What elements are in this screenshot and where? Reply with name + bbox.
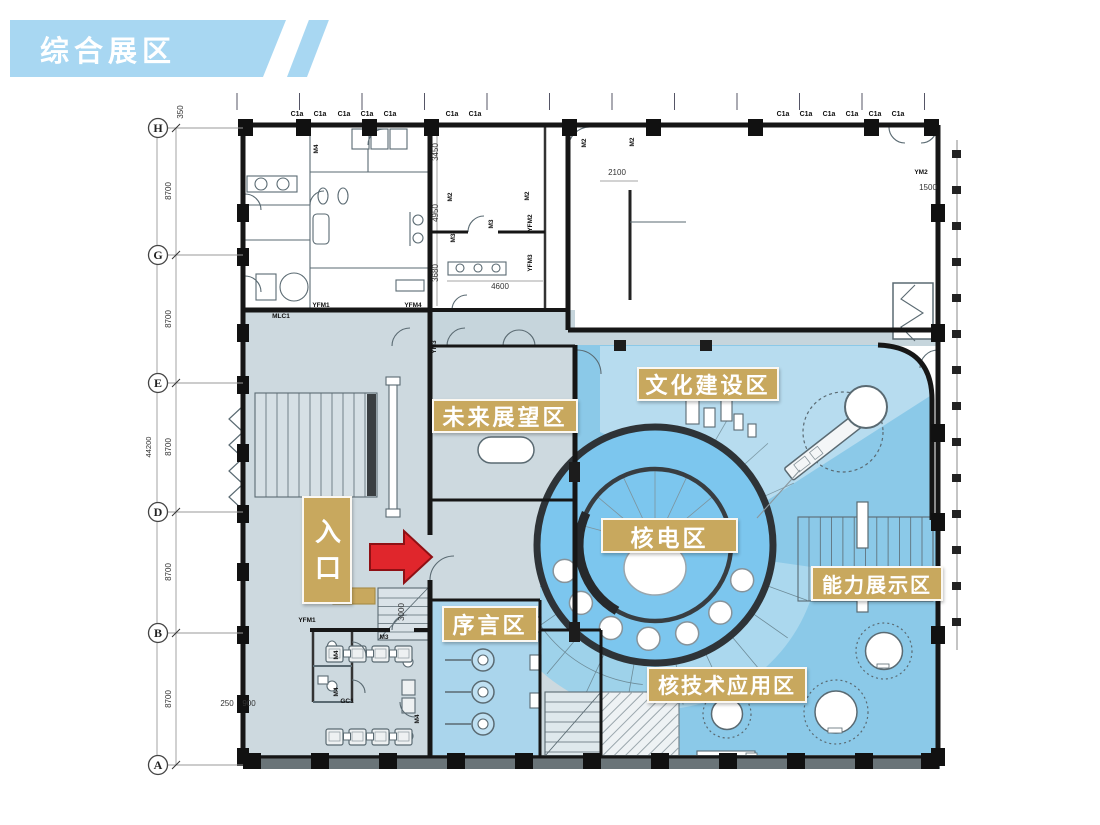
facade-mullion (952, 222, 961, 230)
zone-label-preface: 序言区 (442, 606, 538, 642)
door-code-label: YFM4 (404, 302, 422, 309)
dim-label: 8700 (164, 690, 173, 708)
side-table (344, 650, 351, 657)
door-code-label: M4 (333, 687, 340, 696)
column (237, 204, 249, 222)
door-code-label: M2 (629, 137, 636, 146)
door-code-label: M2 (447, 192, 454, 201)
side-table (390, 733, 397, 740)
dim-label: 8700 (164, 438, 173, 456)
door-code-label: M4 (313, 144, 320, 153)
column (237, 626, 249, 644)
facade-mullion (952, 474, 961, 482)
window-code-label: C1a (869, 111, 882, 118)
column (924, 119, 939, 136)
column (931, 204, 945, 222)
door-code-label: YFM3 (527, 254, 534, 272)
column (651, 753, 669, 769)
facade-mullion (952, 330, 961, 338)
facade-mullion (952, 402, 961, 410)
sofa (395, 646, 412, 662)
zone-label-nuclear-power: 核电区 (601, 518, 738, 553)
column (237, 505, 249, 523)
column (515, 753, 533, 769)
side-table (344, 733, 351, 740)
dim-label: 4950 (431, 204, 440, 222)
facade-mullion (952, 546, 961, 554)
grid-axis: HGEDBA (148, 119, 243, 775)
grid-letter: D (154, 505, 163, 519)
sofa (372, 729, 389, 745)
facade-mullion (952, 510, 961, 518)
grid-letter: B (154, 626, 162, 640)
door-code-label: M3 (488, 219, 495, 228)
column (237, 324, 249, 342)
column (931, 626, 945, 644)
column (562, 119, 577, 136)
hall-seat (599, 616, 622, 639)
facade-mullion (952, 186, 961, 194)
column (237, 563, 249, 581)
dim-label: 8700 (164, 182, 173, 200)
dim-label: 3450 (431, 143, 440, 161)
facade-mullion (952, 150, 961, 158)
dim-label: 2100 (608, 168, 626, 177)
column (646, 119, 661, 136)
door-code-label: YFM1 (298, 617, 316, 624)
column (921, 753, 939, 769)
sofa (349, 729, 366, 745)
sofa (326, 729, 343, 745)
column (447, 753, 465, 769)
facade-mullion (952, 438, 961, 446)
side-table (390, 650, 397, 657)
column (931, 513, 945, 531)
column (787, 753, 805, 769)
column (237, 444, 249, 462)
door-code-label: YFM2 (527, 214, 534, 232)
window-code-label: C1a (446, 111, 459, 118)
column (855, 753, 873, 769)
window-code-label: C1a (314, 111, 327, 118)
door-code-label: M2 (581, 138, 588, 147)
dim-label: 1500 (919, 183, 937, 192)
door-code-label: M2 (524, 191, 531, 200)
window-code-label: C1a (338, 111, 351, 118)
hall-seat (637, 627, 660, 650)
facade-mullion (952, 366, 961, 374)
dim-label: 350 (176, 105, 185, 119)
column (931, 424, 945, 442)
door-code-label: GC1 (340, 698, 354, 705)
zone-label-culture-building: 文化建设区 (637, 367, 779, 401)
top-grid-ticks (237, 93, 925, 110)
grid-letter: H (153, 121, 163, 135)
grid-letter: G (153, 248, 162, 262)
grid-letter: A (154, 758, 163, 772)
dim-label: 44200 (144, 437, 153, 458)
door-code-label: YFM1 (312, 302, 330, 309)
dim-label: 8700 (164, 563, 173, 581)
column (362, 119, 377, 136)
side-table (367, 650, 374, 657)
window-code-label: C1a (800, 111, 813, 118)
column (243, 753, 261, 769)
column (424, 119, 439, 136)
hall-seat (731, 569, 754, 592)
column (237, 376, 249, 394)
door-code-label: M3 (379, 634, 388, 641)
door-code-label: M4 (414, 714, 421, 723)
door-code-label: YM3 (431, 340, 438, 354)
zone-label-nuclear-tech-apps: 核技术应用区 (647, 667, 807, 703)
facade-mullion (952, 294, 961, 302)
window-code-label: C1a (361, 111, 374, 118)
window-code-label: C1a (384, 111, 397, 118)
window-code-label: C1a (846, 111, 859, 118)
door-code-label: MLC1 (272, 313, 290, 320)
zone-label-future-outlook: 未来展望区 (432, 399, 578, 433)
grid-letter: E (154, 376, 162, 390)
side-table (367, 733, 374, 740)
zone-label-capability-display: 能力展示区 (811, 566, 943, 601)
window-code-label: C1a (291, 111, 304, 118)
column (931, 324, 945, 342)
column (237, 248, 249, 266)
dim-label: 3680 (431, 264, 440, 282)
hall-seat (709, 601, 732, 624)
facade-mullion (952, 618, 961, 626)
door-code-label: M3 (450, 233, 457, 242)
dim-label: 900 (242, 699, 256, 708)
column (238, 119, 253, 136)
dim-label: 8700 (164, 310, 173, 328)
column (748, 119, 763, 136)
slide-page: 综合展区 (0, 0, 1100, 825)
column (583, 753, 601, 769)
window-code-label: C1a (469, 111, 482, 118)
column (311, 753, 329, 769)
door-code-label: M4 (333, 650, 340, 659)
facade-mullion (952, 582, 961, 590)
column (296, 119, 311, 136)
dim-label: 250 (220, 699, 234, 708)
facade-mullion (952, 258, 961, 266)
sofa (395, 729, 412, 745)
dim-label: 3000 (397, 603, 406, 621)
entrance-label: 入口 (302, 496, 352, 604)
window-code-label: C1a (777, 111, 790, 118)
window-code-label: C1a (892, 111, 905, 118)
window-code-label: C1a (823, 111, 836, 118)
sofa (372, 646, 389, 662)
door-code-label: YM2 (914, 169, 928, 176)
dim-label: 4600 (491, 282, 509, 291)
column (864, 119, 879, 136)
column (379, 753, 397, 769)
column (719, 753, 737, 769)
hall-seat (676, 622, 699, 645)
